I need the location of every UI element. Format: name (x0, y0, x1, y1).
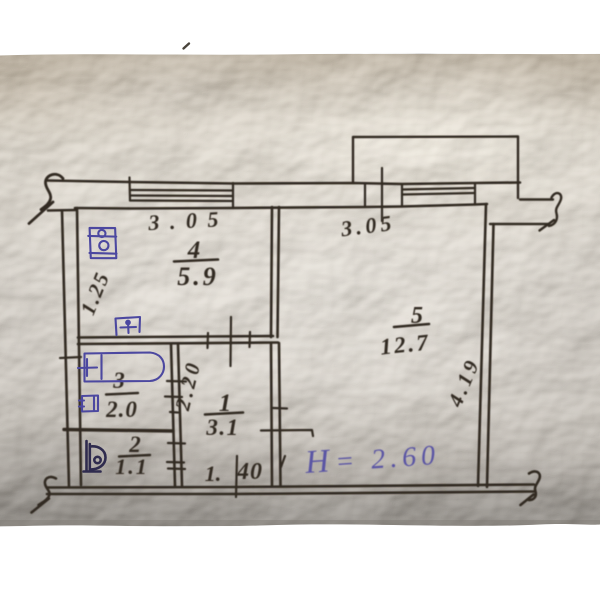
svg-text:H: H (303, 443, 332, 481)
svg-text:3.1: 3.1 (205, 415, 239, 440)
svg-text:5.9: 5.9 (177, 262, 219, 291)
svg-text:1.1: 1.1 (115, 454, 149, 479)
svg-text:1.: 1. (205, 461, 222, 486)
svg-text:40: 40 (236, 459, 263, 485)
svg-text:12.7: 12.7 (379, 329, 432, 359)
svg-text:3.05: 3.05 (147, 206, 230, 235)
svg-text:2.0: 2.0 (105, 397, 138, 422)
